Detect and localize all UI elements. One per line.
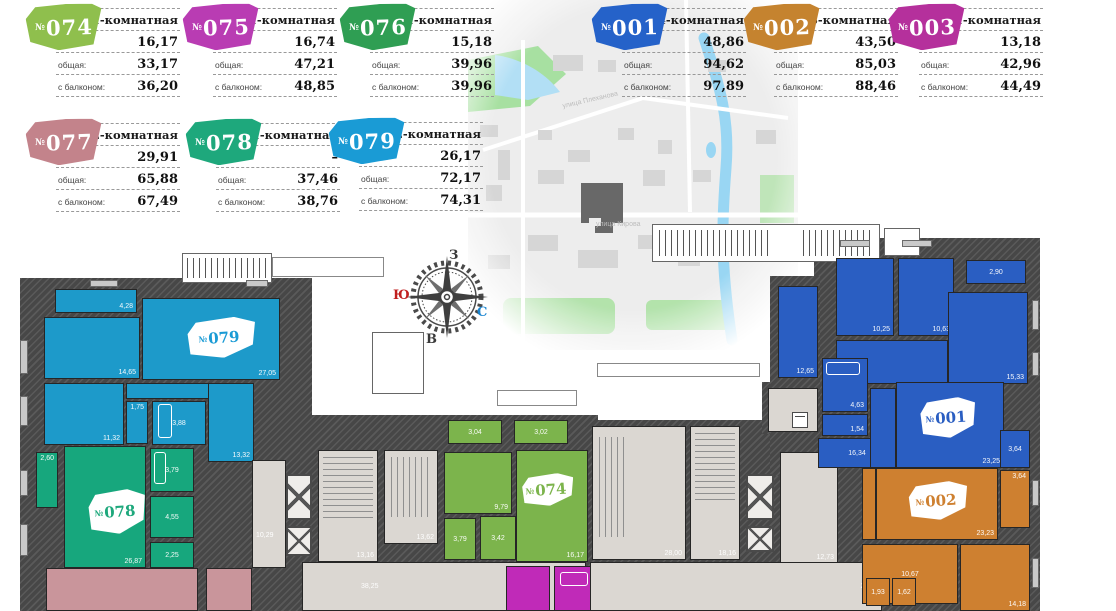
card-row-value: 48,85	[294, 79, 335, 94]
card-row-value: 37,46	[297, 172, 338, 187]
apt075-room[interactable]	[506, 566, 550, 611]
card-row-label: с балконом:	[776, 82, 823, 92]
card-row-label: общая:	[215, 60, 243, 70]
apartment-card-077[interactable]: №077 2-комнатная жилая:29,91 общая:65,88…	[30, 119, 180, 212]
card-row-label: с балконом:	[624, 82, 671, 92]
card-row-label: общая:	[58, 175, 86, 185]
apt077-room2[interactable]	[206, 568, 252, 611]
card-row-value: 74,31	[440, 193, 481, 208]
common-lobby	[252, 460, 286, 568]
apt002-room[interactable]: 14,18	[960, 544, 1030, 611]
compass-west-label: З	[449, 248, 458, 263]
common-stairwell-a: 13,16	[318, 450, 378, 562]
card-row-value: 36,20	[137, 79, 178, 94]
card-row-label: общая:	[361, 174, 389, 184]
card-row-label: с балконом:	[372, 82, 419, 92]
floorplan-page: улица Плеханова улица Кирова З Ю С В	[0, 0, 1116, 611]
window	[1032, 352, 1039, 376]
apt001-wc[interactable]: 1,54	[822, 414, 868, 436]
apt001-room3[interactable]: 10,63	[898, 258, 954, 336]
elevator-icon	[286, 474, 312, 520]
apt001-room1[interactable]: 12,65	[778, 286, 818, 378]
compass-north-label: С	[477, 305, 487, 320]
apt074-balcony1[interactable]: 3,04	[448, 420, 502, 444]
apartment-card-003[interactable]: №003 1-комнатная жилая:13,18 общая:42,96…	[893, 4, 1043, 97]
card-badge-074: №074	[25, 3, 103, 52]
roof-outline	[182, 253, 272, 283]
bathtub-icon	[826, 362, 860, 375]
card-row-label: общая:	[372, 60, 400, 70]
card-row-value: 16,74	[294, 35, 335, 50]
card-row-label: с балконом:	[215, 82, 262, 92]
compass-rose-icon	[402, 252, 492, 342]
elevator-icon	[286, 526, 312, 556]
card-row-value: 44,49	[1000, 79, 1041, 94]
window	[20, 396, 28, 426]
card-row-value: 48,86	[703, 35, 744, 50]
card-row-value: 65,88	[137, 172, 178, 187]
apt079-hall[interactable]: 13,32	[208, 383, 254, 462]
card-row-value: 38,76	[297, 194, 338, 209]
card-row-value: 29,91	[137, 150, 178, 165]
apt074-balcony2[interactable]: 3,02	[514, 420, 568, 444]
window	[840, 240, 870, 247]
apt078-wc[interactable]: 2,25	[150, 542, 194, 568]
apt077-room[interactable]	[46, 568, 198, 611]
card-row-label: общая:	[624, 60, 652, 70]
common-stairwell-b: 13,62	[384, 450, 438, 544]
card-badge-079: №079	[328, 117, 406, 166]
card-row-label: общая:	[921, 60, 949, 70]
card-row-value: 88,46	[855, 79, 896, 94]
card-badge-001: №001	[591, 3, 669, 52]
card-row-value: 15,18	[451, 35, 492, 50]
card-badge-003: №003	[888, 3, 966, 52]
window	[20, 470, 28, 496]
card-row-value: 85,03	[855, 57, 896, 72]
common-corridor-b: 12,73	[780, 452, 838, 564]
apt074-bath[interactable]: 3,79	[444, 518, 476, 560]
compass-south-label: Ю	[393, 288, 410, 303]
apt001-balcony1[interactable]: 2,90	[966, 260, 1026, 284]
elevator-icon	[746, 526, 774, 552]
window	[246, 280, 268, 287]
window	[1032, 558, 1039, 588]
window	[1032, 300, 1039, 330]
common-stairwell-c: 28,00	[592, 426, 686, 560]
railing-outline	[597, 363, 760, 377]
card-badge-076: №076	[339, 3, 417, 52]
trash-chute-icon	[792, 412, 808, 428]
card-row-value: 67,49	[137, 194, 178, 209]
card-row-value: 39,96	[451, 79, 492, 94]
apt002-wc1[interactable]: 1,93	[866, 578, 890, 606]
window	[20, 524, 28, 556]
apt079-room2[interactable]: 11,32	[44, 383, 124, 445]
card-row-label: общая:	[776, 60, 804, 70]
window	[90, 280, 118, 287]
card-row-value: 94,62	[703, 57, 744, 72]
apartment-card-075[interactable]: №075 1-комнатная жилая:16,74 общая:47,21…	[187, 4, 337, 97]
apartment-card-001[interactable]: №001 4-комнатная жилая:48,86 общая:94,62…	[596, 4, 746, 97]
compass-east-label: В	[426, 332, 437, 347]
card-row-value: 13,18	[1000, 35, 1041, 50]
roof-outline	[272, 257, 384, 277]
bathtub-icon	[158, 404, 172, 438]
card-badge-078: №078	[185, 118, 263, 167]
card-row-value: 26,17	[440, 149, 481, 164]
apartment-card-079[interactable]: №079 2-комнатная жилая:26,17 общая:72,17…	[333, 118, 483, 211]
window	[20, 340, 28, 374]
card-row-value: 42,96	[1000, 57, 1041, 72]
apt078-storage[interactable]: 4,55	[150, 496, 194, 538]
apt002-appliance-strip[interactable]	[862, 468, 876, 540]
card-row-value: 47,21	[294, 57, 335, 72]
roof-outline	[372, 332, 424, 394]
card-row-value: 97,89	[703, 79, 744, 94]
card-badge-075: №075	[182, 3, 260, 52]
apartment-card-076[interactable]: №076 1-комнатная жилая:15,18 общая:39,96…	[344, 4, 494, 97]
window	[902, 240, 932, 247]
apt079-hall-top[interactable]	[126, 383, 210, 399]
card-row-label: с балконом:	[58, 197, 105, 207]
apt079-room1[interactable]: 14,65	[44, 317, 140, 379]
apt001-balcony2[interactable]: 3,64	[1000, 430, 1030, 468]
window	[1032, 480, 1039, 506]
bathtub-icon	[154, 452, 166, 484]
apt002-balcony[interactable]: 3,64	[1000, 470, 1030, 528]
card-row-value: 16,17	[137, 35, 178, 50]
apartment-card-078[interactable]: №078 1-комнатная жилая:– общая:37,46 с б…	[190, 119, 340, 212]
card-row-label: с балконом:	[921, 82, 968, 92]
card-row-label: с балконом:	[218, 197, 265, 207]
card-badge-002: №002	[743, 3, 821, 52]
apt079-balcony[interactable]: 4,28	[55, 289, 137, 313]
card-row-value: 72,17	[440, 171, 481, 186]
common-stairwell-d: 18,16	[690, 426, 740, 560]
apt074-kitchen[interactable]: 9,79	[444, 452, 512, 514]
card-row-label: общая:	[218, 175, 246, 185]
apt001-kitchen-strip[interactable]	[870, 388, 896, 468]
apt002-wc2[interactable]: 1,62	[892, 578, 916, 606]
bathtub-icon	[560, 572, 588, 586]
card-row-label: с балконом:	[361, 196, 408, 206]
card-badge-077: №077	[25, 118, 103, 167]
elevator-icon	[746, 474, 774, 520]
apt001-room4[interactable]: 15,33	[948, 292, 1028, 384]
apt001-room2[interactable]: 10,25	[836, 258, 894, 336]
apt079-wc[interactable]: 1,75	[126, 401, 148, 444]
apartment-card-002[interactable]: №002 3-комнатная жилая:43,50 общая:85,03…	[748, 4, 898, 97]
card-row-value: 39,96	[451, 57, 492, 72]
card-row-label: общая:	[58, 60, 86, 70]
card-row-label: с балконом:	[58, 82, 105, 92]
card-row-value: 33,17	[137, 57, 178, 72]
apt074-hall[interactable]: 3,42	[480, 516, 516, 560]
common-corridor-c: 26,44	[590, 562, 882, 611]
card-row-value: 43,50	[855, 35, 896, 50]
railing-outline	[497, 390, 577, 406]
apt078-balcony[interactable]: 2,60	[36, 452, 58, 508]
common-lobby-area: 10,29	[256, 532, 274, 539]
apartment-card-074[interactable]: №074 1-комнатная жилая:16,17 общая:33,17…	[30, 4, 180, 97]
apt074-living[interactable]: 16,17	[516, 450, 588, 562]
